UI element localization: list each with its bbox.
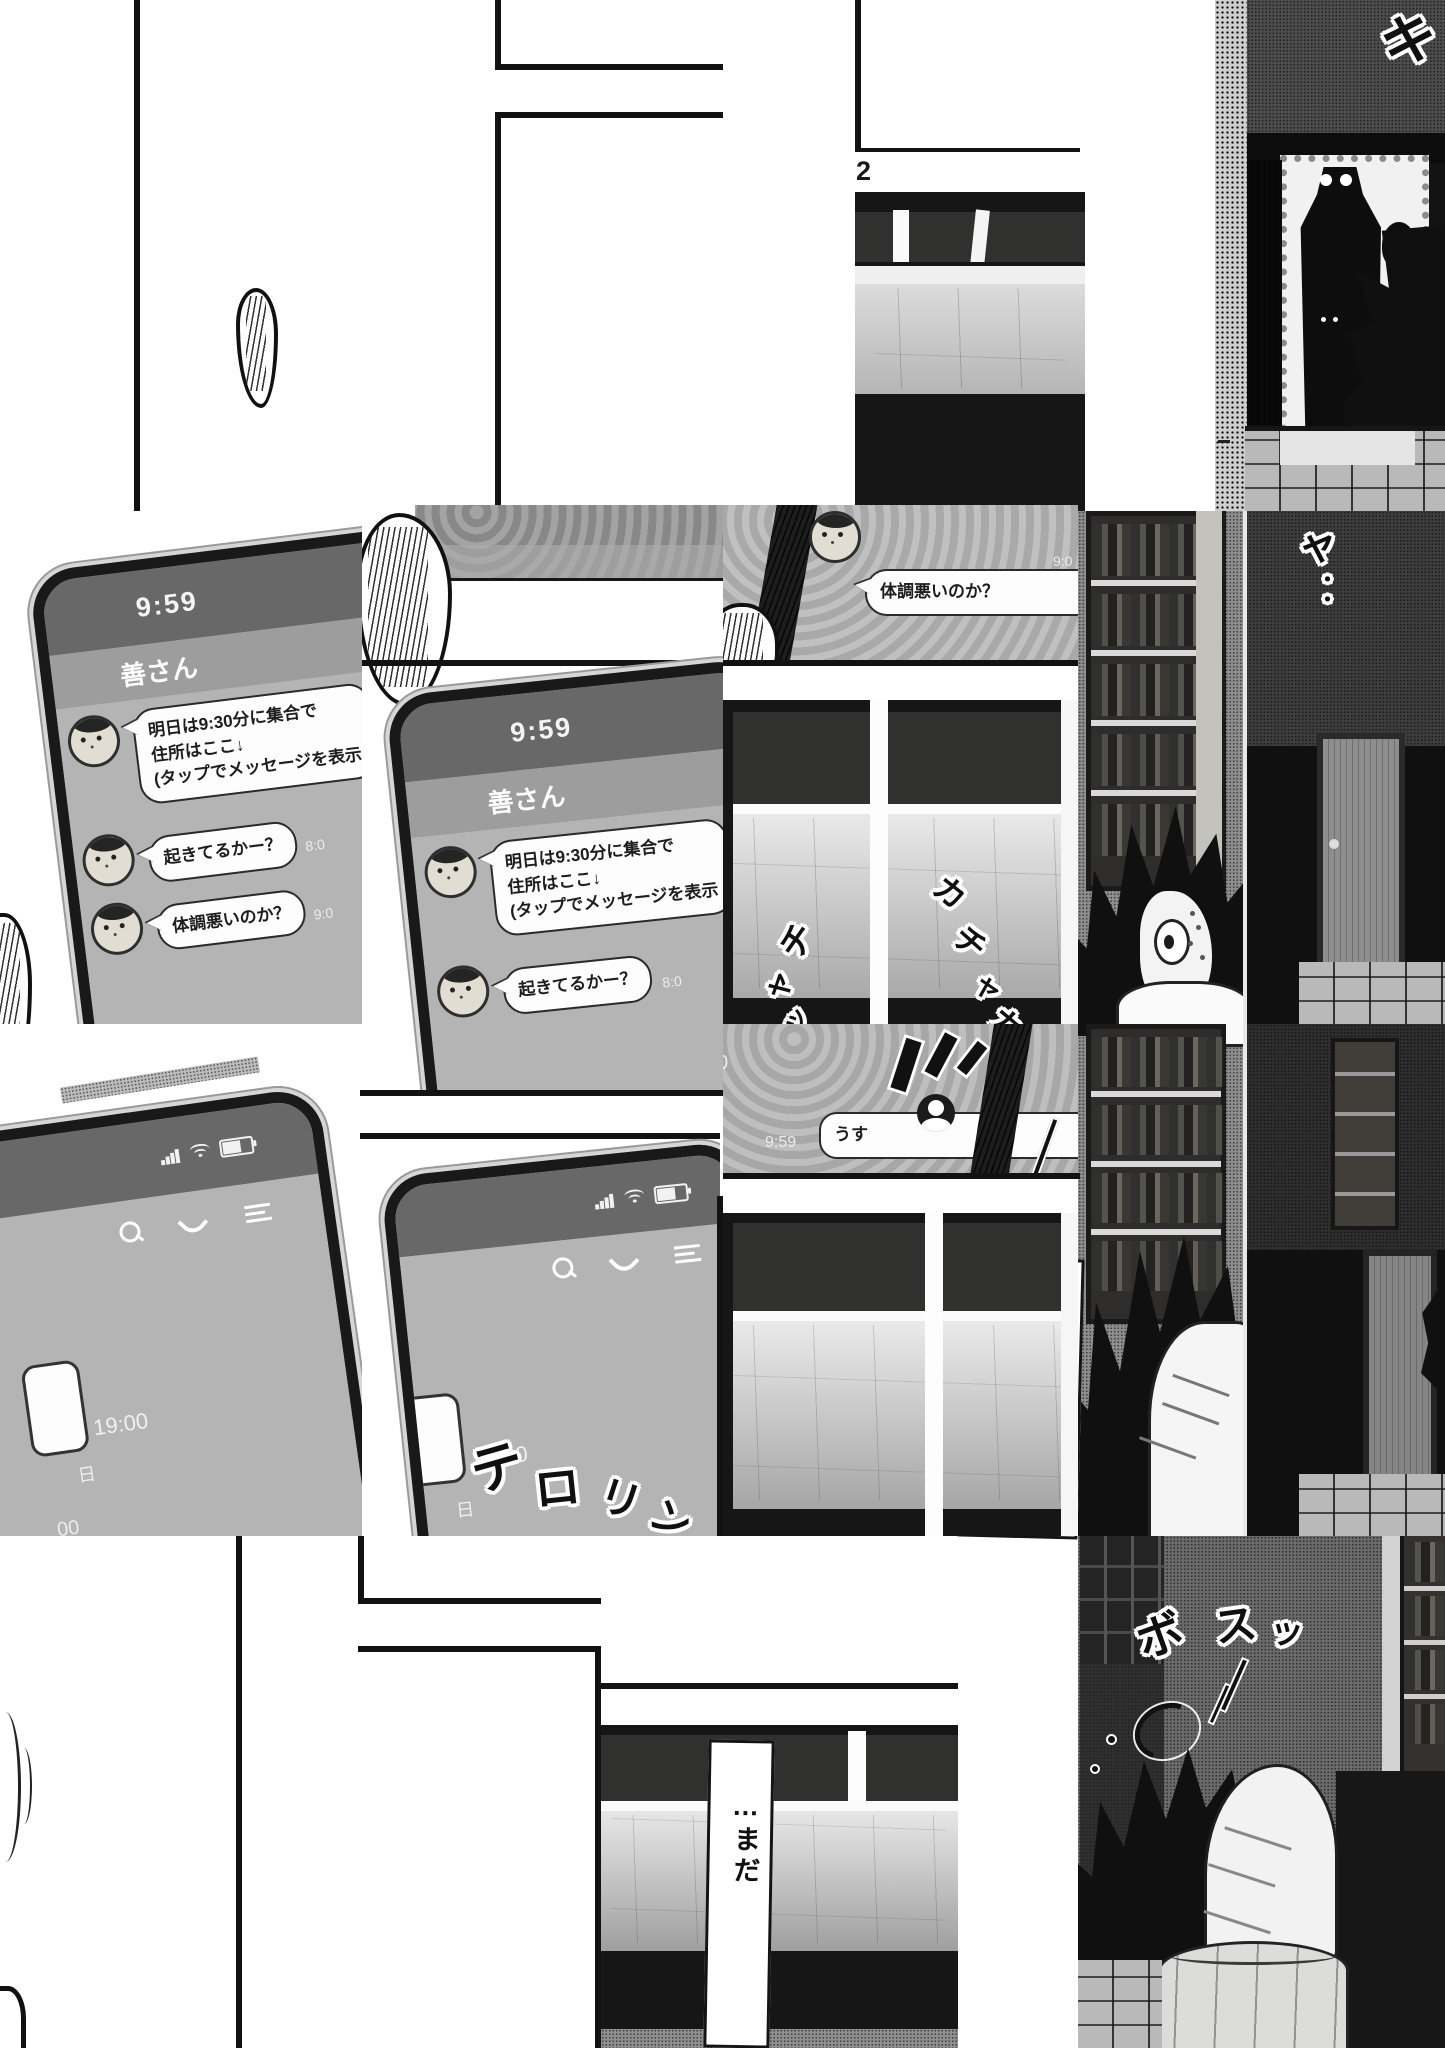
phone3: 19:00 日 00 00 00 — [0, 1086, 362, 1536]
panel-border — [495, 112, 501, 511]
contact-avatar — [88, 899, 146, 957]
door — [1317, 733, 1405, 975]
battery-icon — [653, 1183, 689, 1204]
phone1: 9:59 善さん 明日は9:30分に集合で 住所はここ↓ (タップでメッセージを… — [28, 526, 362, 1024]
contact-avatar — [65, 712, 123, 770]
event-card — [402, 1392, 467, 1487]
panel-border — [495, 112, 723, 118]
menu-icon — [244, 1203, 272, 1224]
phone2-chat: 明日は9:30分に集合で 住所はここ↓ (タップでメッセージを表示 今 起きてる… — [411, 801, 723, 1093]
battery-icon — [219, 1135, 255, 1158]
timestamp: 9:0 — [313, 904, 336, 933]
panel-border — [855, 148, 1080, 152]
event-time: 19:00 — [92, 1408, 150, 1441]
status-time: 9:59 — [509, 711, 574, 748]
panel-border — [723, 1173, 1080, 1179]
cabinet-panel — [601, 1689, 958, 2048]
glowing-eye — [1340, 174, 1352, 186]
door-frame-mark — [1218, 440, 1230, 443]
contact-avatar — [80, 831, 138, 889]
contact-name: 善さん — [486, 775, 567, 820]
phone1-chat: 明日は9:30分に集合で 住所はここ↓ (タップでメッセージを表示 今 起きてる… — [56, 666, 362, 1024]
timestamp: 8:0 — [304, 836, 327, 865]
attention-marks — [887, 1034, 926, 1096]
panel-border — [723, 660, 1080, 666]
contact-avatar — [422, 844, 479, 901]
event-card — [20, 1359, 90, 1458]
attention-marks — [920, 1028, 961, 1082]
contact-avatar — [435, 963, 492, 1020]
menu-icon — [674, 1244, 702, 1265]
panel-border — [495, 0, 501, 70]
phone4-tile: 19:00 日 0 テ ロ リ ン — [362, 1136, 720, 1536]
sfx-flop: ス — [1210, 1589, 1260, 1655]
motion-curve — [16, 1748, 32, 1824]
page-number: 2 — [856, 156, 871, 187]
chat-bubble: 体調悪いのか？ — [865, 569, 1078, 616]
manga-page: 2 — [0, 0, 1445, 2048]
wifi-icon — [624, 1189, 646, 1207]
call-icon — [177, 1207, 208, 1238]
phone2: 9:59 善さん 明日は9:30分に集合で 住所はここ↓ (タップでメッセージを… — [385, 658, 723, 1093]
panel-border — [358, 1536, 364, 1604]
chat-fragment-tile: 体調悪いのか？ 9:0 — [723, 505, 1078, 660]
panel-border — [855, 0, 861, 152]
sfx-notification: ロ — [531, 1450, 584, 1520]
phone3-tile: 19:00 日 00 00 00 — [0, 1024, 362, 1536]
chat-bubble: 起きてるかー？ — [146, 819, 300, 883]
cabinet-panel: チ ャ ッ カ チ ャ カ — [723, 700, 1078, 1024]
reply-timestamp: 9:59 — [765, 1134, 796, 1152]
chat-bubble: 体調悪いのか？ — [154, 887, 308, 951]
timestamp: 9:0 — [1053, 553, 1072, 569]
hand-sketch — [362, 513, 452, 706]
door-knob — [1329, 839, 1339, 849]
hallway-tile: ャ ・・ — [1245, 511, 1445, 1536]
status-time: 9:59 — [134, 585, 199, 623]
zero-fragment: 0 — [723, 1052, 728, 1075]
stump — [1158, 1941, 1349, 2048]
contact-avatar — [809, 511, 861, 563]
panel-border — [134, 0, 140, 511]
phone1-tile: 9:59 善さん 明日は9:30分に集合で 住所はここ↓ (タップでメッセージを… — [0, 505, 362, 1024]
doorway-panel: キ — [1215, 0, 1445, 511]
signal-icon — [594, 1192, 616, 1210]
glowing-eye — [1320, 174, 1332, 186]
search-icon — [551, 1256, 574, 1279]
wall-pillar — [1243, 511, 1247, 1536]
panel-border — [358, 1646, 601, 1652]
bubble-tail — [122, 720, 140, 738]
search-icon — [118, 1220, 142, 1244]
sfx-door-creak-dots: ・・ — [1311, 569, 1340, 609]
panel-border — [360, 1090, 723, 1096]
wifi-icon — [189, 1143, 211, 1162]
call-icon — [608, 1245, 639, 1276]
panel-border — [358, 1598, 601, 1604]
user-avatar — [917, 1094, 955, 1132]
signal-icon — [159, 1147, 181, 1166]
sweat-dot — [1106, 1734, 1117, 1745]
phone2-tile: 9:59 善さん 明日は9:30分に集合で 住所はここ↓ (タップでメッセージを… — [362, 505, 723, 1093]
slump-scene-tile: ボ ス ッ — [1078, 1536, 1445, 2048]
day-label: 日 — [76, 1460, 97, 1488]
timestamp: 8:0 — [662, 973, 684, 1000]
cabinet-panel — [723, 1213, 1078, 1536]
reply-fragment-tile: 0 うす 9:59 — [723, 1024, 1078, 1176]
panel-border — [495, 64, 723, 70]
speech-bubble-secondary: …まだ — [703, 1739, 774, 2048]
boy-shirt — [1148, 1321, 1245, 1536]
sleeve-sketch — [0, 913, 32, 1024]
day-label: 日 — [455, 1495, 476, 1523]
sleeve-sketch — [236, 288, 278, 408]
bookshelf — [1086, 1024, 1226, 1324]
bookshelf-panel — [855, 192, 1085, 511]
chat-bubble: 起きてるかー？ — [501, 954, 654, 1016]
bookshelf-dark — [1331, 1038, 1399, 1230]
boy-room-tile — [1078, 511, 1245, 1536]
sfx-flop: ッ — [1268, 1602, 1307, 1654]
contact-name: 善さん — [118, 647, 200, 693]
sweat-dot — [1090, 1764, 1100, 1774]
panel-border — [236, 1536, 242, 2048]
phone-corner-fragment — [0, 1986, 26, 2048]
minute-fragment: 00 — [56, 1516, 81, 1536]
bookshelf — [1400, 1536, 1445, 1771]
speech-text: …まだ — [725, 1791, 766, 1888]
